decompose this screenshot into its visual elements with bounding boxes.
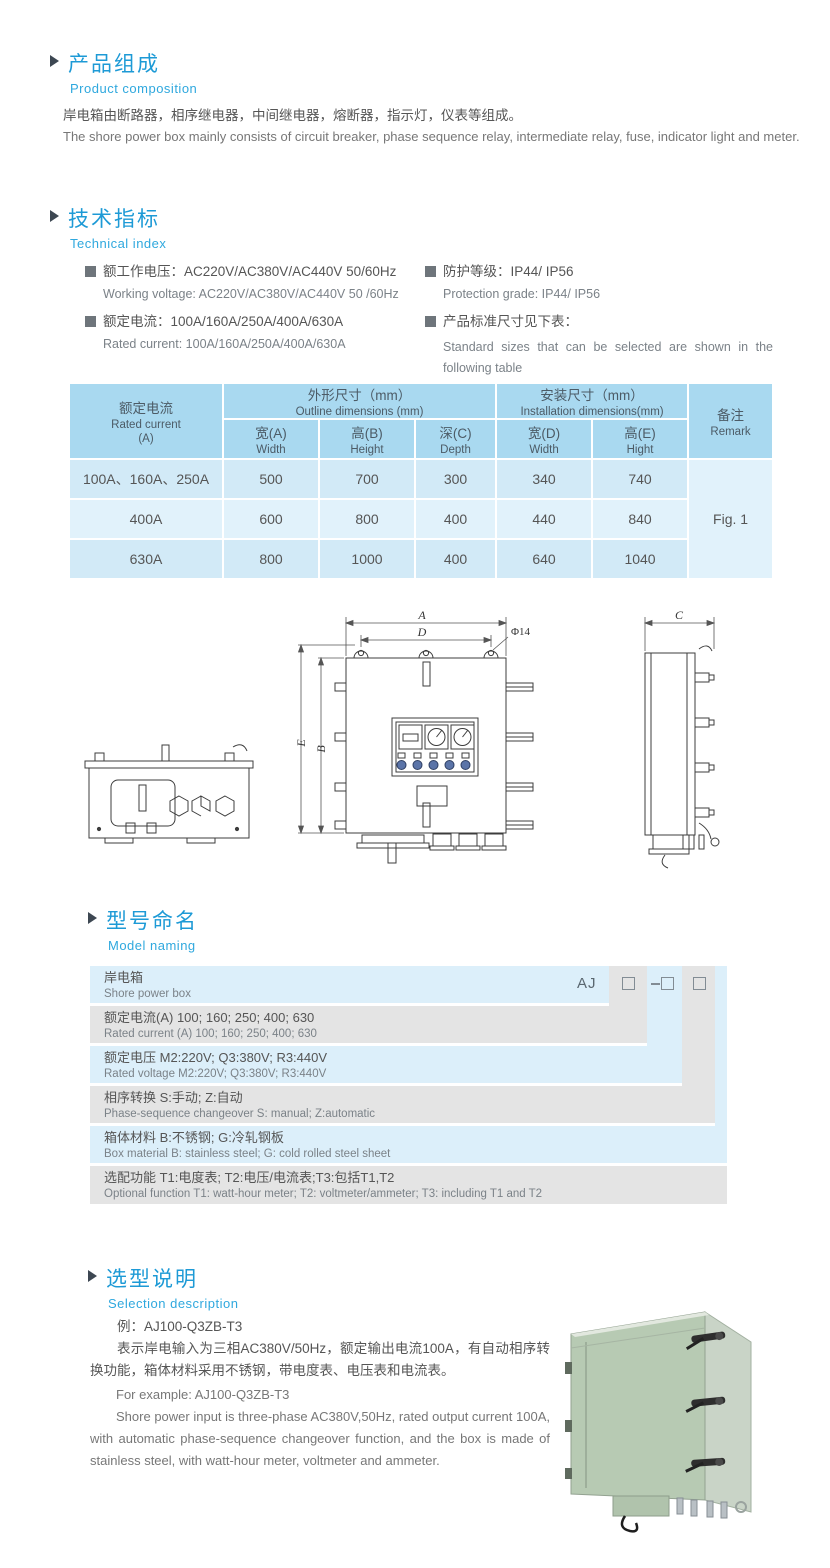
square-bullet-icon [85,316,96,327]
spec-zh: 额定电流：100A/160A/250A/400A/630A [103,314,343,329]
section-arrow-icon [50,55,59,67]
cell-height: 800 [320,500,414,538]
cell-depth: 400 [416,500,495,538]
section-title-zh: 选型说明 [106,1263,238,1293]
sub-header-width-a: 宽(A)Width [224,420,318,458]
model-code-box [661,977,674,990]
product-photo [555,1300,825,1550]
section-title-zh: 型号命名 [106,905,198,935]
model-code-box [693,977,706,990]
selection-text-block: 例：AJ100-Q3ZB-T3 表示岸电输入为三相AC380V/50Hz，额定输… [90,1316,550,1472]
spec-zh: 额工作电压：AC220V/AC380V/AC440V 50/60Hz [103,264,396,279]
section-arrow-icon [88,912,97,924]
cell-width: 600 [224,500,318,538]
cell-inst-hight: 840 [593,500,687,538]
cell-inst-hight: 1040 [593,540,687,578]
section-technical-header: 技术指标 Technical index [50,203,166,251]
selection-example-en: For example: AJ100-Q3ZB-T3 [90,1384,550,1406]
dim-label-B: B [314,745,328,753]
col-header-installation: 安装尺寸（mm） Installation dimensions(mm) [497,384,687,418]
spec-en: Rated current: 100A/160A/250A/400A/630A [103,337,346,351]
cell-depth: 300 [416,460,495,498]
section-title-zh: 技术指标 [68,203,166,233]
selection-example-zh: 例：AJ100-Q3ZB-T3 [90,1316,550,1338]
model-naming-diagram: 岸电箱 Shore power box 额定电流(A) 100; 160; 25… [90,966,735,1208]
dim-label-D: D [417,625,427,639]
section-title-en: Technical index [70,236,166,251]
selection-desc-en: Shore power input is three-phase AC380V,… [90,1406,550,1472]
cell-current: 100A、160A、250A [70,460,222,498]
model-row-rated-current: 额定电流(A) 100; 160; 250; 400; 630 Rated cu… [90,1006,647,1043]
cell-inst-width: 340 [497,460,591,498]
composition-text-zh: 岸电箱由断路器，相序继电器，中间继电器，熔断器，指示灯，仪表等组成。 [63,104,803,124]
spec-en: Protection grade: IP44/ IP56 [443,287,600,301]
model-row-optional-function: 选配功能 T1:电度表; T2:电压/电流表;T3:包括T1,T2 Option… [90,1166,727,1204]
spec-en: Working voltage: AC220V/AC380V/AC440V 50… [103,287,399,301]
cell-height: 1000 [320,540,414,578]
spec-zh: 防护等级：IP44/ IP56 [443,264,574,279]
spec-protection-grade: 防护等级：IP44/ IP56 Protection grade: IP44/ … [425,260,600,301]
col-header-outline: 外形尺寸（mm） Outline dimensions (mm) [224,384,495,418]
section-arrow-icon [50,210,59,222]
table-row: 400A 600 800 400 440 840 [70,500,772,538]
cell-inst-width: 640 [497,540,591,578]
technical-drawing: A D Φ14 E B C [65,583,765,888]
cell-inst-width: 440 [497,500,591,538]
table-row: 630A 800 1000 400 640 1040 [70,540,772,578]
front-view [335,650,533,863]
cell-current: 630A [70,540,222,578]
dim-label-A: A [417,608,426,622]
bottom-view [85,745,253,843]
spec-working-voltage: 额工作电压：AC220V/AC380V/AC440V 50/60Hz Worki… [85,260,399,301]
model-code-box [622,977,635,990]
dimensions-table: 额定电流 Rated current (A) 外形尺寸（mm） Outline … [68,382,774,580]
side-view [645,646,719,868]
instrument-panel [392,718,478,776]
section-model-naming-header: 型号命名 Model naming [88,905,198,953]
composition-text-en: The shore power box mainly consists of c… [63,129,813,144]
cell-remark: Fig. 1 [689,460,772,578]
cell-height: 700 [320,460,414,498]
model-code-dash-icon [651,983,660,985]
square-bullet-icon [425,316,436,327]
section-title-en: Product composition [70,81,197,96]
model-row-phase-sequence: 相序转换 S:手动; Z:自动 Phase-sequence changeove… [90,1086,715,1123]
col-header-rated-current: 额定电流 Rated current (A) [70,384,222,458]
model-row-rated-voltage: 额定电压 M2:220V; Q3:380V; R3:440V Rated vol… [90,1046,682,1083]
cell-inst-hight: 740 [593,460,687,498]
spec-standard-sizes: 产品标准尺寸见下表： Standard sizes that can be se… [425,310,773,379]
selection-desc-zh: 表示岸电输入为三相AC380V/50Hz，额定输出电流100A，有自动相序转换功… [90,1338,550,1382]
sub-header-width-d: 宽(D)Width [497,420,591,458]
sub-header-hight-e: 高(E)Hight [593,420,687,458]
sub-header-height-b: 高(B)Height [320,420,414,458]
section-composition-header: 产品组成 Product composition [50,48,197,96]
table-row: 100A、160A、250A 500 700 300 340 740 Fig. … [70,460,772,498]
cell-depth: 400 [416,540,495,578]
section-selection-header: 选型说明 Selection description [88,1263,238,1311]
square-bullet-icon [425,266,436,277]
model-row-box-material: 箱体材料 B:不锈钢; G:冷轧钢板 Box material B: stain… [90,1126,727,1163]
model-row-shore-power-box: 岸电箱 Shore power box [90,966,609,1003]
section-title-en: Model naming [108,938,198,953]
cell-width: 800 [224,540,318,578]
spec-en: Standard sizes that can be selected are … [443,337,773,379]
spec-zh: 产品标准尺寸见下表： [443,314,578,329]
section-arrow-icon [88,1270,97,1282]
col-header-remark: 备注 Remark [689,384,772,458]
catalog-page: 产品组成 Product composition 岸电箱由断路器，相序继电器，中… [0,0,830,1568]
section-title-zh: 产品组成 [68,48,197,78]
cell-width: 500 [224,460,318,498]
model-code-prefix: AJ [577,975,597,992]
spec-rated-current: 额定电流：100A/160A/250A/400A/630A Rated curr… [85,310,346,351]
dim-label-C: C [675,608,684,622]
dim-label-E: E [294,739,308,748]
sub-header-depth-c: 深(C)Depth [416,420,495,458]
dim-label-phi14: Φ14 [511,626,531,638]
square-bullet-icon [85,266,96,277]
cell-current: 400A [70,500,222,538]
section-title-en: Selection description [108,1296,238,1311]
